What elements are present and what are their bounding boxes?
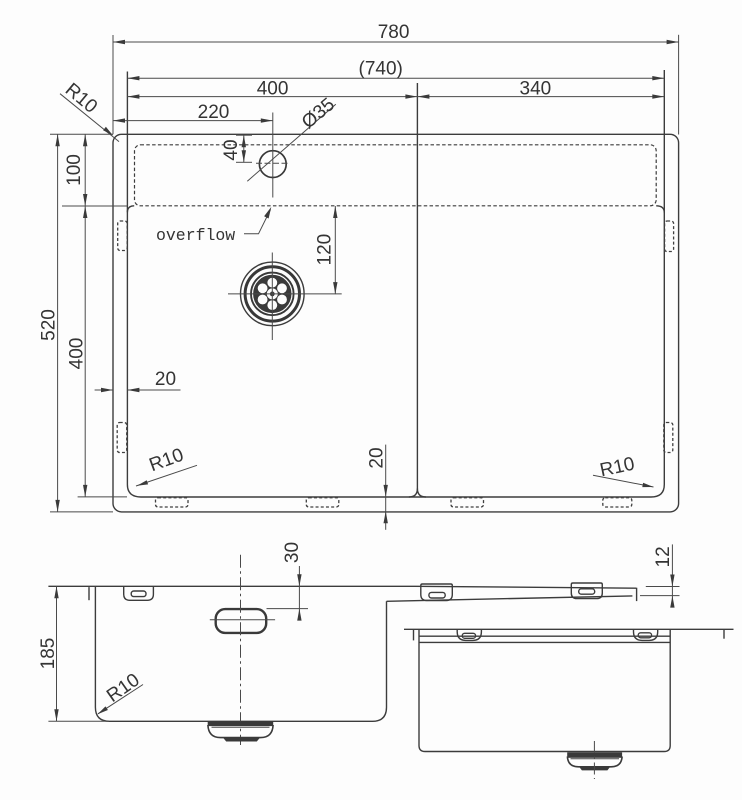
svg-text:40: 40 (221, 139, 242, 160)
svg-text:185: 185 (38, 638, 59, 670)
svg-text:780: 780 (378, 22, 410, 43)
svg-text:30: 30 (282, 542, 303, 563)
svg-text:overflow: overflow (156, 226, 235, 245)
svg-text:400: 400 (257, 79, 289, 100)
svg-text:12: 12 (653, 546, 674, 567)
svg-text:20: 20 (155, 369, 176, 390)
svg-text:400: 400 (66, 338, 87, 370)
svg-text:(740): (740) (359, 59, 403, 80)
svg-text:340: 340 (520, 79, 552, 100)
svg-text:120: 120 (315, 234, 336, 266)
svg-text:520: 520 (39, 309, 60, 341)
svg-text:20: 20 (366, 447, 387, 468)
svg-text:100: 100 (64, 154, 85, 186)
svg-text:220: 220 (198, 102, 230, 123)
